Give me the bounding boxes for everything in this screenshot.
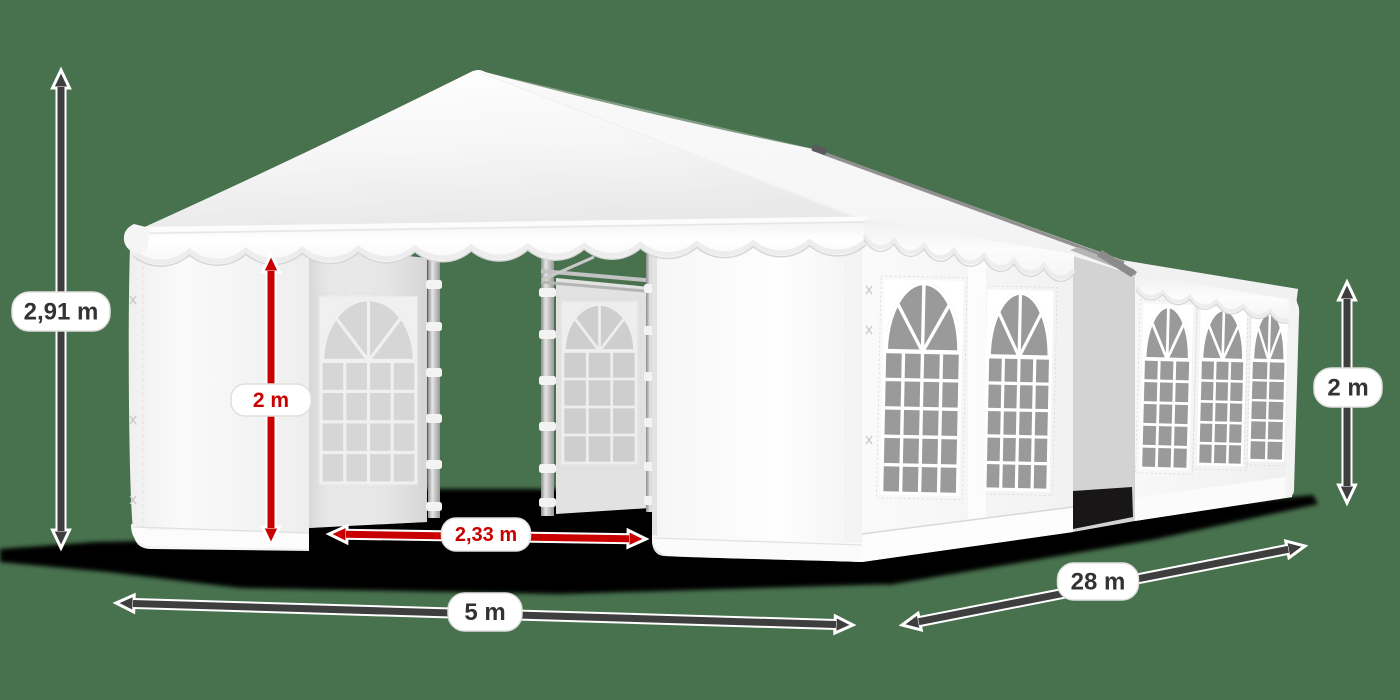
svg-text:28 m: 28 m	[1071, 569, 1126, 596]
svg-text:2,33 m: 2,33 m	[455, 524, 517, 546]
svg-text:2 m: 2 m	[253, 389, 289, 412]
svg-text:5 m: 5 m	[464, 599, 505, 626]
svg-text:2 m: 2 m	[1327, 375, 1368, 402]
svg-text:2,91 m: 2,91 m	[24, 299, 99, 326]
